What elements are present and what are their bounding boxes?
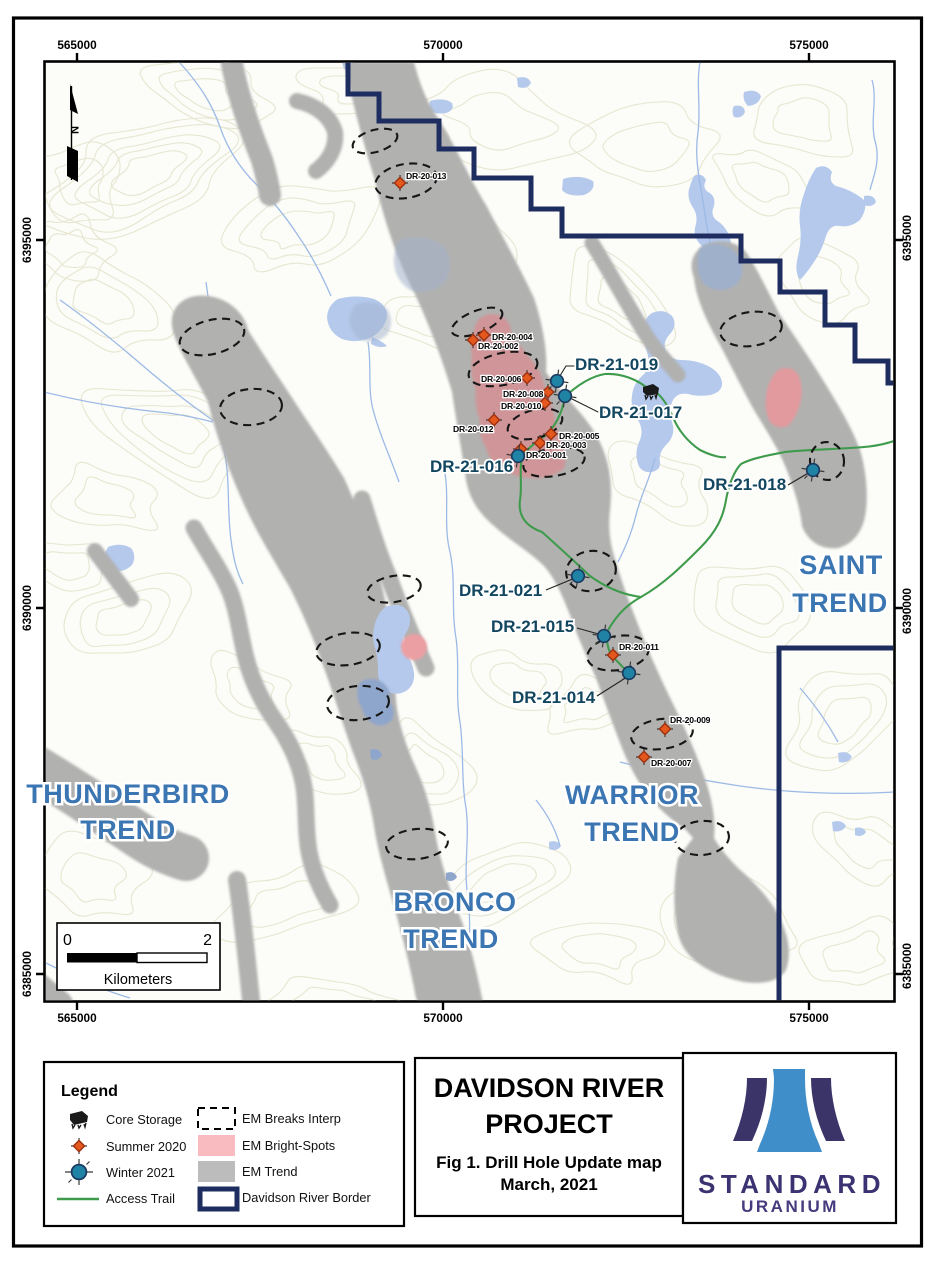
svg-text:6385000: 6385000 <box>20 951 34 997</box>
svg-text:Access Trail: Access Trail <box>106 1191 175 1206</box>
svg-text:565000: 565000 <box>57 1011 97 1025</box>
svg-text:March, 2021: March, 2021 <box>500 1175 597 1194</box>
svg-text:Core Storage: Core Storage <box>106 1112 182 1127</box>
svg-text:TREND: TREND <box>403 924 499 954</box>
svg-text:DR-21-019: DR-21-019 <box>575 355 658 374</box>
svg-text:DR-21-018: DR-21-018 <box>703 475 786 494</box>
svg-text:WARRIOR: WARRIOR <box>565 780 699 810</box>
svg-text:Kilometers: Kilometers <box>104 972 173 988</box>
svg-text:Davidson River Border: Davidson River Border <box>242 1190 371 1205</box>
svg-text:DR-20-007: DR-20-007 <box>651 758 692 768</box>
svg-text:Fig 1. Drill Hole Update map: Fig 1. Drill Hole Update map <box>436 1153 662 1172</box>
svg-text:DR-20-013: DR-20-013 <box>406 171 447 181</box>
svg-text:Winter 2021: Winter 2021 <box>106 1165 175 1180</box>
svg-text:DR-20-002: DR-20-002 <box>478 341 519 351</box>
svg-text:DR-20-010: DR-20-010 <box>501 401 542 411</box>
svg-text:2: 2 <box>203 932 212 949</box>
svg-text:EM Trend: EM Trend <box>242 1164 297 1179</box>
svg-text:DR-20-006: DR-20-006 <box>481 374 522 384</box>
svg-text:DR-21-017: DR-21-017 <box>599 403 682 422</box>
svg-text:DR-20-003: DR-20-003 <box>546 440 587 450</box>
svg-text:DR-20-009: DR-20-009 <box>670 715 711 725</box>
svg-text:DR-21-016: DR-21-016 <box>430 457 513 476</box>
svg-text:TREND: TREND <box>792 588 888 618</box>
svg-text:570000: 570000 <box>423 1011 463 1025</box>
svg-text:DR-21-015: DR-21-015 <box>491 617 574 636</box>
svg-text:N: N <box>68 126 80 134</box>
svg-text:DAVIDSON RIVER: DAVIDSON RIVER <box>434 1073 665 1103</box>
svg-text:URANIUM: URANIUM <box>741 1197 839 1216</box>
svg-text:TREND: TREND <box>584 817 680 847</box>
svg-text:TREND: TREND <box>80 815 176 845</box>
svg-text:DR-21-021: DR-21-021 <box>459 581 542 600</box>
svg-text:DR-20-011: DR-20-011 <box>619 642 659 652</box>
svg-text:EM Breaks Interp: EM Breaks Interp <box>242 1111 341 1126</box>
svg-text:DR-20-012: DR-20-012 <box>453 424 494 434</box>
svg-text:565000: 565000 <box>57 38 97 52</box>
svg-text:DR-20-008: DR-20-008 <box>503 389 544 399</box>
svg-text:575000: 575000 <box>789 38 829 52</box>
svg-text:STANDARD: STANDARD <box>698 1169 886 1199</box>
svg-text:6385000: 6385000 <box>900 943 914 989</box>
svg-text:THUNDERBIRD: THUNDERBIRD <box>26 779 230 809</box>
svg-text:6395000: 6395000 <box>900 215 914 261</box>
svg-text:570000: 570000 <box>423 38 463 52</box>
svg-text:6395000: 6395000 <box>20 217 34 263</box>
svg-text:DR-20-001: DR-20-001 <box>526 450 567 460</box>
svg-text:BRONCO: BRONCO <box>394 887 517 917</box>
svg-text:6390000: 6390000 <box>20 585 34 631</box>
svg-text:Legend: Legend <box>61 1083 118 1100</box>
svg-text:Summer 2020: Summer 2020 <box>106 1139 186 1154</box>
svg-text:0: 0 <box>63 932 72 949</box>
svg-text:SAINT: SAINT <box>799 550 883 580</box>
svg-text:6390000: 6390000 <box>900 588 914 634</box>
svg-text:PROJECT: PROJECT <box>485 1109 613 1139</box>
svg-text:EM Bright-Spots: EM Bright-Spots <box>242 1138 335 1153</box>
svg-text:575000: 575000 <box>789 1011 829 1025</box>
svg-text:DR-21-014: DR-21-014 <box>512 688 596 707</box>
